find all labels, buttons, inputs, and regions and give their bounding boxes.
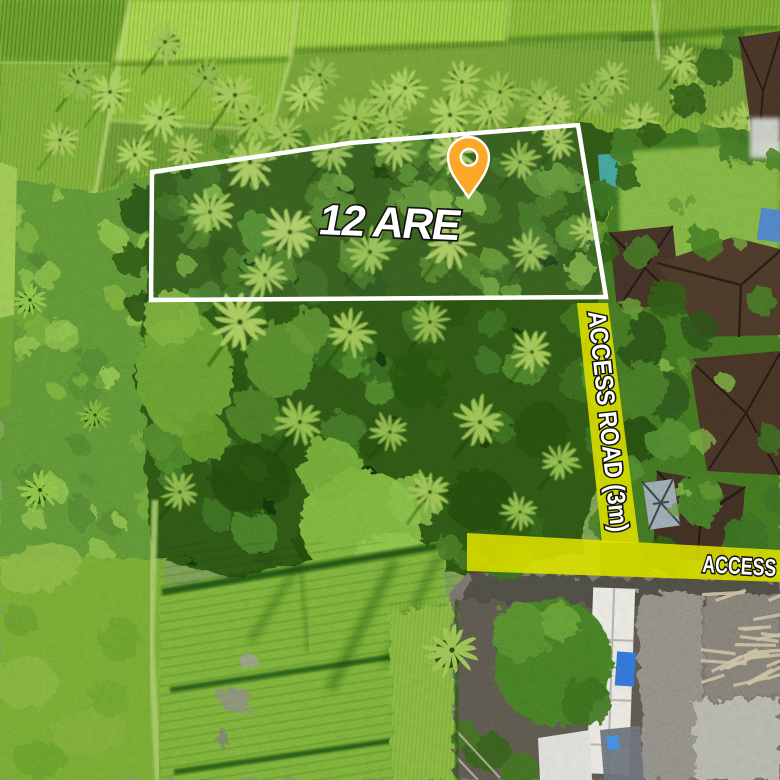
svg-text:ACCESS: ACCESS bbox=[702, 551, 777, 582]
svg-text:12 ARE: 12 ARE bbox=[315, 196, 464, 250]
